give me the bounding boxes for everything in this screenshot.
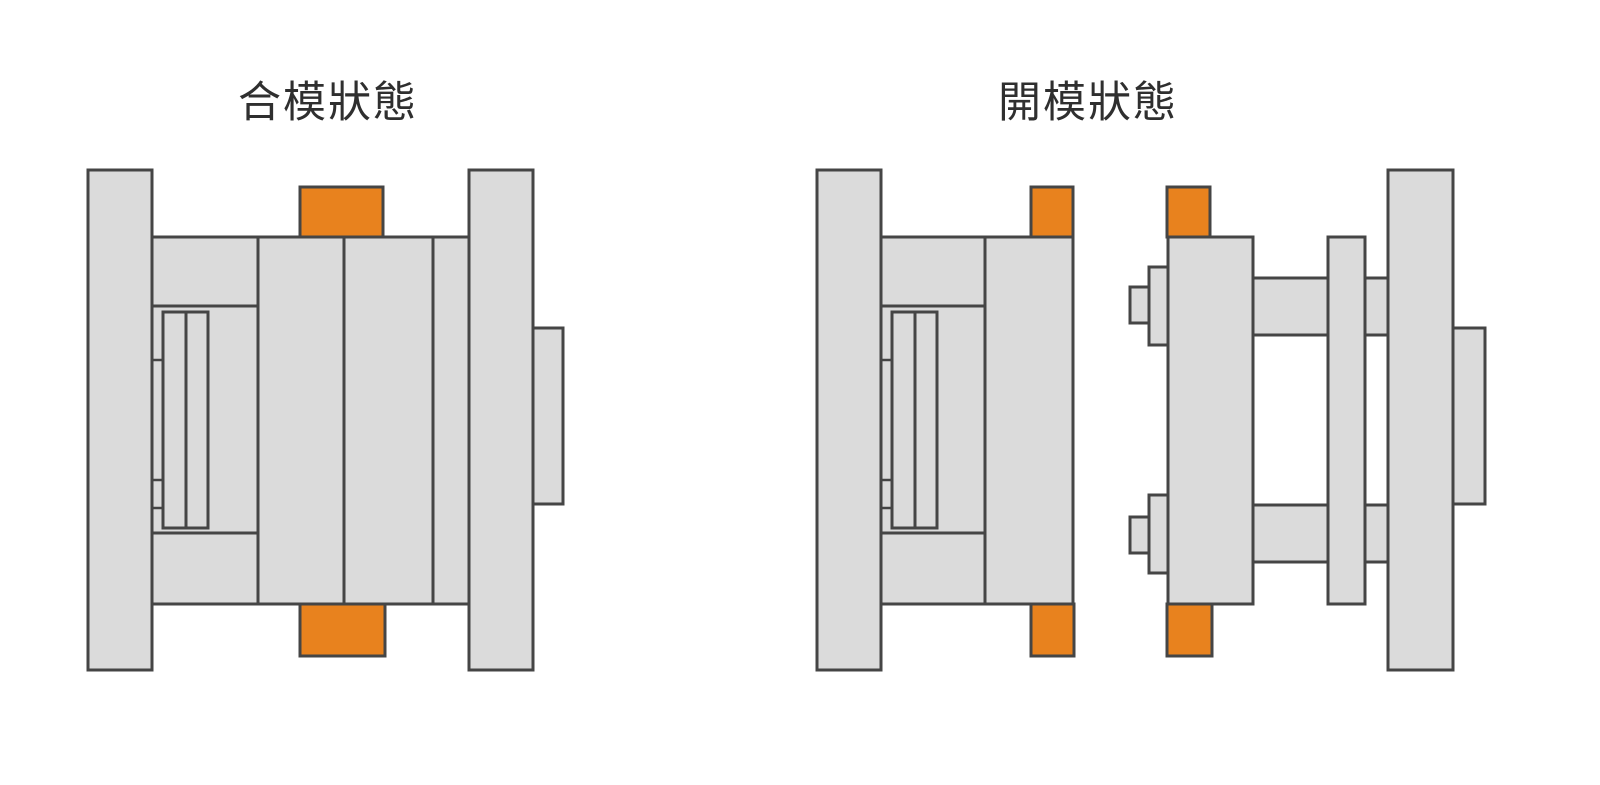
puller-pin-lower-body [1149, 495, 1168, 573]
parting-lock-bottom [300, 604, 385, 656]
ejector-retainer-plate [186, 312, 208, 528]
ejector-retainer-plate [915, 312, 937, 528]
ejector-base-plate [163, 312, 186, 528]
cavity-plate-a [344, 237, 433, 604]
fixed-clamp-plate [1388, 170, 1453, 670]
core-plate-b [258, 237, 344, 604]
puller-pin-upper-head [1130, 287, 1149, 323]
ejector-base-plate [892, 312, 915, 528]
parting-lock-bottom-fixed [1167, 604, 1212, 656]
closed-state-title: 合模狀態 [168, 80, 488, 127]
core-plate-b [985, 237, 1073, 604]
parting-lock-top-movable [1031, 187, 1073, 237]
fixed-clamp-plate [469, 170, 533, 670]
puller-pin-lower-head [1130, 517, 1149, 553]
parting-lock-top [300, 187, 383, 237]
mold-closed-diagram [88, 170, 563, 670]
open-state-title: 開模狀態 [928, 80, 1248, 127]
parting-lock-top-fixed [1167, 187, 1210, 237]
guide-pin-lower [1253, 505, 1388, 562]
stripper-plate [1328, 237, 1365, 604]
guide-pin-upper [1253, 278, 1388, 335]
movable-clamp-plate [88, 170, 152, 670]
mold-open-diagram [817, 170, 1485, 670]
stripper-plate [433, 237, 469, 604]
puller-pin-upper-body [1149, 267, 1168, 345]
locating-ring [1453, 328, 1485, 504]
parting-lock-bottom-movable [1031, 604, 1074, 656]
movable-clamp-plate [817, 170, 881, 670]
mold-states-figure: 合模狀態 開模狀態 [0, 0, 1600, 785]
locating-ring [533, 328, 563, 504]
cavity-plate-a [1168, 237, 1253, 604]
